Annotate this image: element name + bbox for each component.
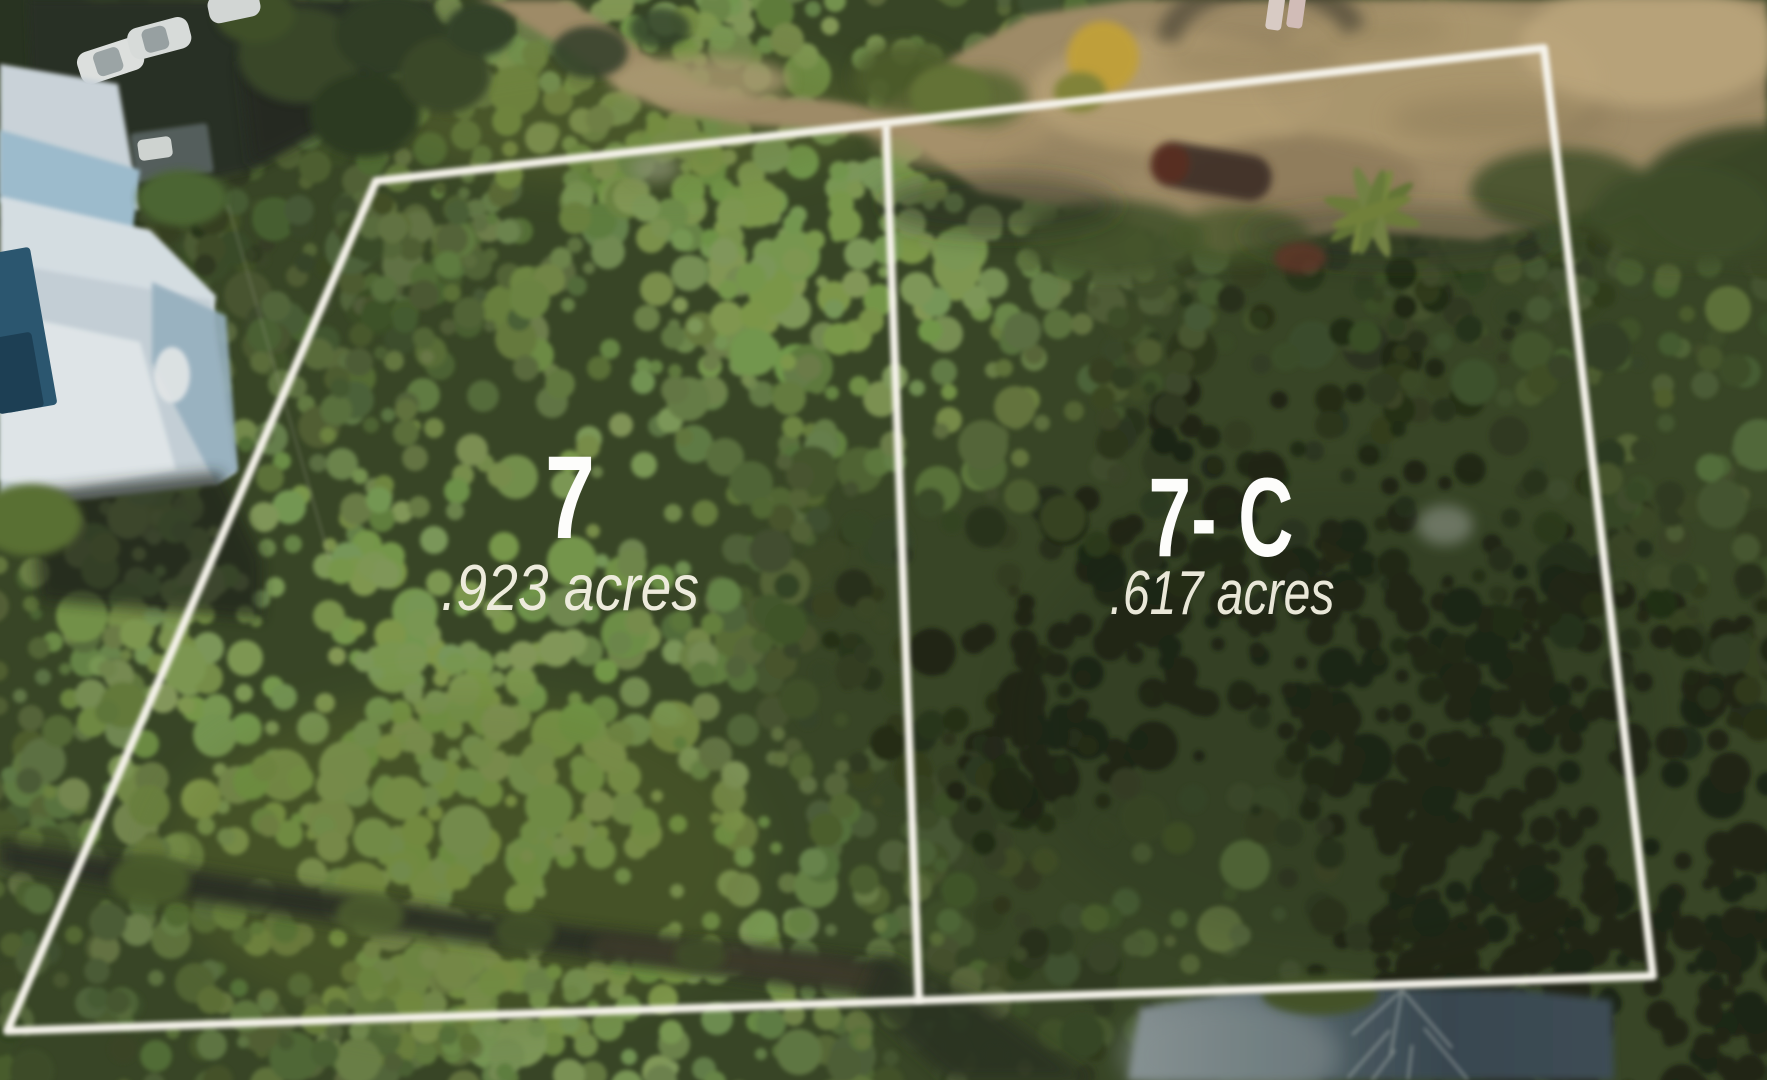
svg-text:7: 7 (545, 432, 595, 564)
svg-text:.923 acres: .923 acres (441, 551, 699, 624)
svg-text:.617 acres: .617 acres (1110, 559, 1335, 628)
